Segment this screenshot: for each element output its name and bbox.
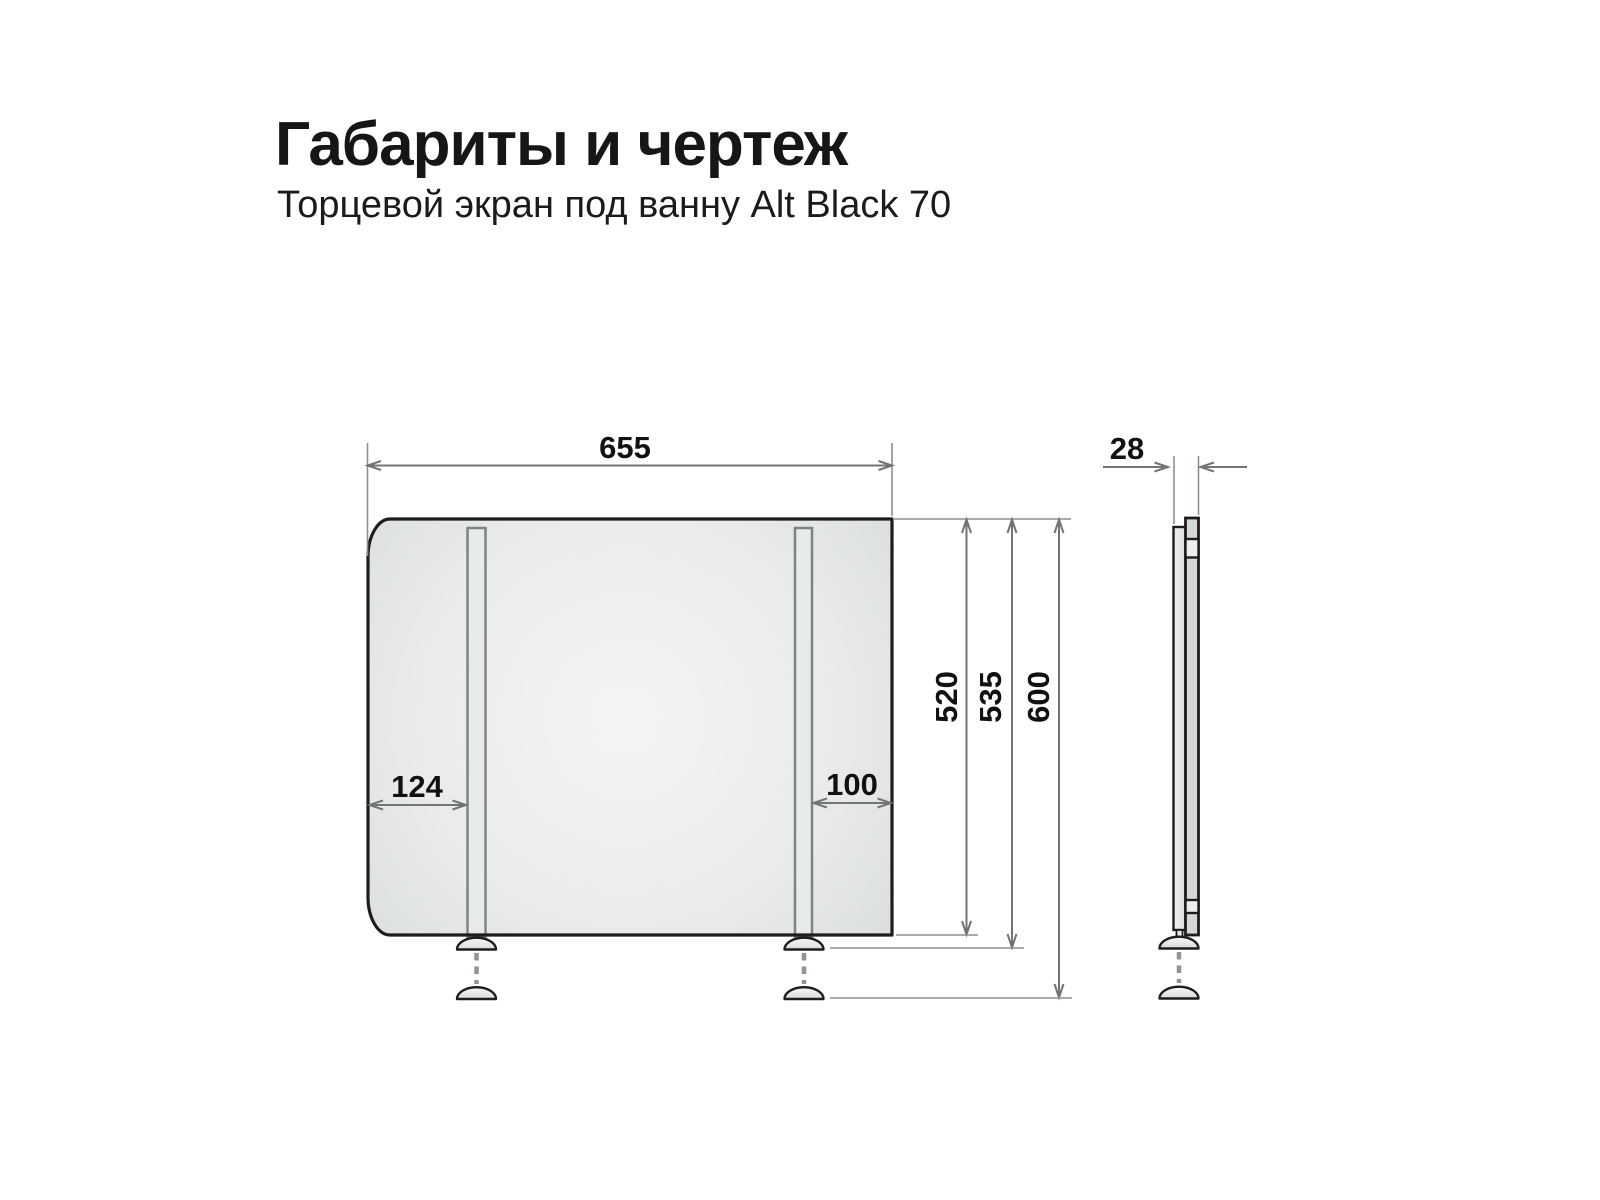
side-rail-strip bbox=[1174, 527, 1186, 930]
dim-max-height-label: 600 bbox=[1021, 671, 1056, 723]
dim-thickness-label: 28 bbox=[1110, 431, 1144, 466]
right-rail bbox=[795, 528, 812, 938]
side-panel-strip bbox=[1186, 518, 1199, 935]
side-bottom-clip bbox=[1186, 900, 1199, 913]
left-lower-foot bbox=[457, 987, 496, 999]
dim-panel-height-label: 520 bbox=[929, 671, 964, 723]
panel-fill bbox=[368, 519, 892, 935]
left-rail bbox=[468, 528, 486, 938]
dim-thickness: 28 bbox=[1103, 431, 1247, 524]
left-leg-foot bbox=[457, 938, 496, 999]
technical-drawing: 655 124 100 520 bbox=[0, 0, 1600, 1200]
right-leg-foot bbox=[785, 938, 824, 999]
side-upper-foot bbox=[1160, 937, 1199, 949]
dim-panel-height: 520 bbox=[896, 519, 978, 935]
side-top-clip bbox=[1186, 539, 1199, 558]
front-view bbox=[368, 519, 892, 999]
dim-right-leg-offset-label: 100 bbox=[826, 767, 878, 802]
left-upper-foot bbox=[457, 938, 496, 950]
dim-height-with-foot-label: 535 bbox=[973, 671, 1008, 723]
dim-overall-width-label: 655 bbox=[599, 430, 651, 465]
dim-left-leg-offset-label: 124 bbox=[391, 769, 443, 804]
side-view bbox=[1160, 518, 1199, 999]
right-lower-foot bbox=[785, 987, 824, 999]
right-upper-foot bbox=[785, 938, 824, 950]
side-lower-foot bbox=[1160, 987, 1199, 999]
